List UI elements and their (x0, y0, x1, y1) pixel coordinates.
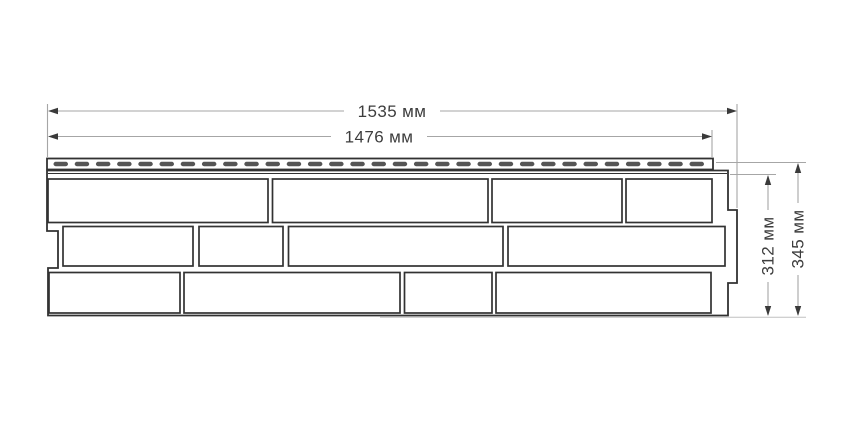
panel-technical-drawing: 1535 мм 1476 мм 312 мм (0, 0, 850, 425)
hem-slot (584, 162, 599, 166)
brick (49, 273, 180, 314)
hem-slot (456, 162, 471, 166)
hem-slot (350, 162, 365, 166)
hem-slot (393, 162, 408, 166)
hem-slot (372, 162, 387, 166)
hem-slot (668, 162, 683, 166)
hem-slot (308, 162, 323, 166)
brick (508, 227, 725, 267)
brick (63, 227, 193, 267)
hem-slot (520, 162, 535, 166)
drawing-svg: 1535 мм 1476 мм 312 мм (0, 0, 850, 425)
brick-row-2 (63, 227, 725, 267)
brick-row-3 (49, 273, 711, 314)
hem-slot (478, 162, 493, 166)
dimension-nominal-width: 1476 мм (48, 128, 712, 147)
hem-slot (329, 162, 344, 166)
brick (492, 179, 622, 223)
hem-slot (287, 162, 302, 166)
hem-slot (605, 162, 620, 166)
hem-slot (690, 162, 705, 166)
arrow-down-icon (795, 306, 801, 316)
arrow-right-icon (702, 133, 712, 139)
brick (289, 227, 504, 267)
hem-slot (138, 162, 153, 166)
arrow-up-icon (765, 175, 771, 185)
brick (199, 227, 283, 267)
hem-slot (181, 162, 196, 166)
nail-hem-slots (54, 162, 705, 166)
overall-height-label: 345 мм (789, 210, 808, 269)
panel (47, 159, 737, 316)
brick (273, 179, 489, 223)
dimension-overall-height: 345 мм (789, 163, 808, 316)
arrow-right-icon (727, 108, 737, 114)
hem-slot (541, 162, 556, 166)
arrow-down-icon (765, 306, 771, 316)
hem-slot (414, 162, 429, 166)
hem-slot (96, 162, 111, 166)
brick (496, 273, 711, 314)
brick (405, 273, 493, 314)
hem-slot (626, 162, 641, 166)
hem-slot (75, 162, 90, 166)
hem-slot (244, 162, 258, 166)
brick (184, 273, 400, 314)
hem-slot (202, 162, 217, 166)
hem-slot (499, 162, 514, 166)
nominal-width-label: 1476 мм (345, 128, 414, 147)
hem-slot (435, 162, 450, 166)
hem-slot (562, 162, 577, 166)
brick-row-1 (48, 179, 712, 223)
hem-slot (54, 162, 69, 166)
brick (48, 179, 268, 223)
arrow-left-icon (48, 108, 58, 114)
hem-slot (223, 162, 238, 166)
panel-height-label: 312 мм (759, 217, 778, 276)
hem-slot (266, 162, 281, 166)
arrow-up-icon (795, 163, 801, 173)
hem-slot (117, 162, 132, 166)
hem-slot (647, 162, 662, 166)
dimension-panel-height: 312 мм (759, 175, 778, 316)
arrow-left-icon (48, 133, 58, 139)
brick (626, 179, 712, 223)
dimension-overall-width: 1535 мм (48, 102, 737, 121)
overall-width-label: 1535 мм (358, 102, 427, 121)
hem-slot (160, 162, 175, 166)
